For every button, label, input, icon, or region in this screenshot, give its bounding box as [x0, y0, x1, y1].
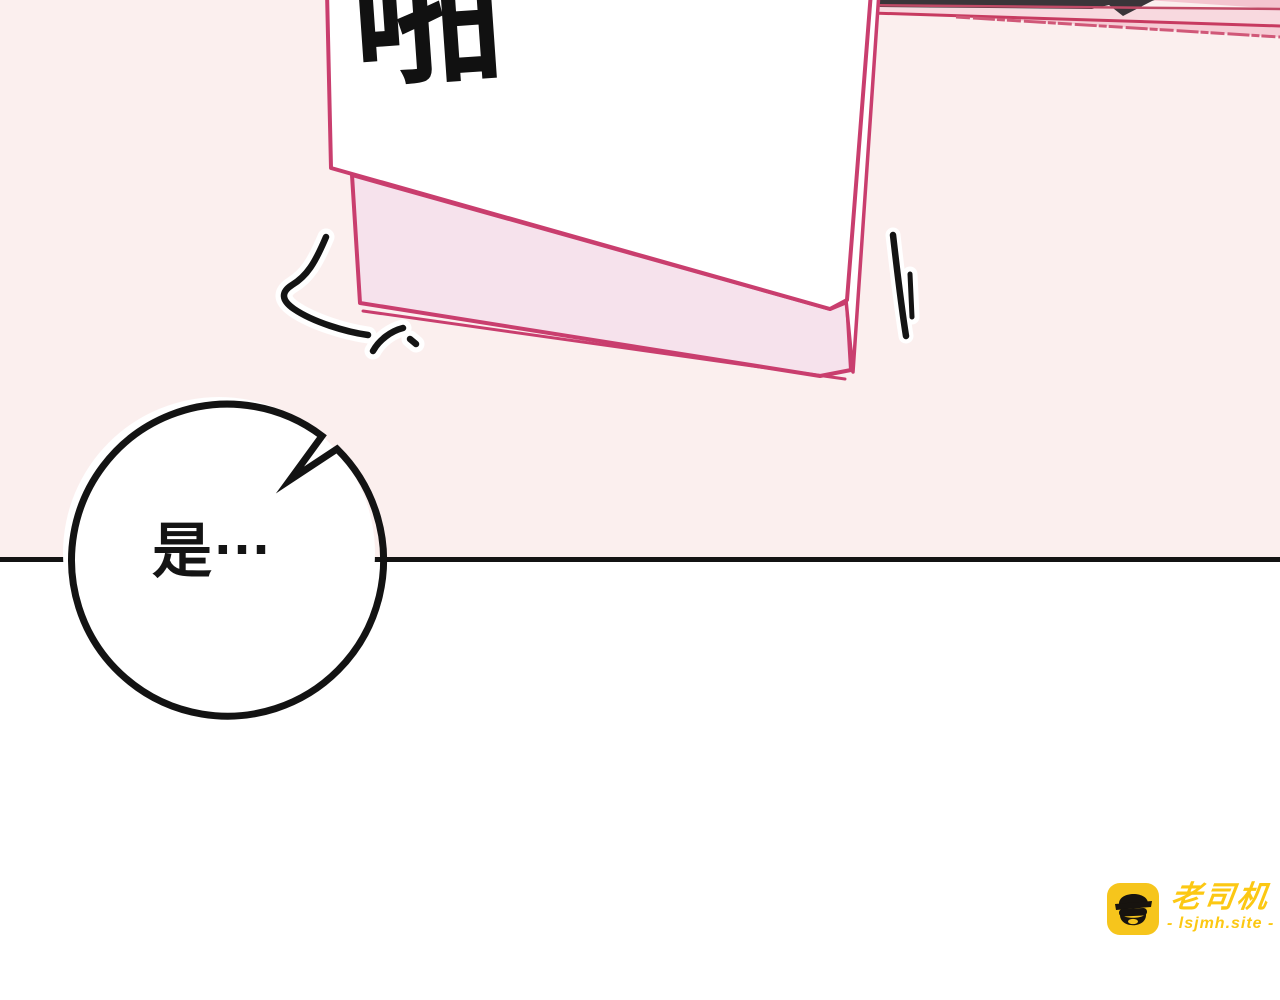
background-stripes [854, 0, 1280, 37]
driver-face-icon [1106, 882, 1160, 936]
speech-ellipsis: … [212, 500, 270, 567]
watermark-texts: 老司机 - lsjmh.site - [1167, 883, 1274, 933]
comic-panel: 啪 是… 老司机 - lsjmh.site - [0, 0, 1280, 1000]
sfx-text: 啪 [347, 0, 503, 97]
motion-lines [893, 235, 912, 336]
watermark-brand: 老司机 [1169, 883, 1272, 913]
speech-text: 是 [152, 518, 212, 585]
watermark-site: - lsjmh.site - [1167, 915, 1274, 933]
speech-bubble-text: 是… [152, 522, 270, 582]
panel-artwork [0, 0, 1280, 1000]
site-watermark: 老司机 - lsjmh.site - [1106, 882, 1274, 936]
